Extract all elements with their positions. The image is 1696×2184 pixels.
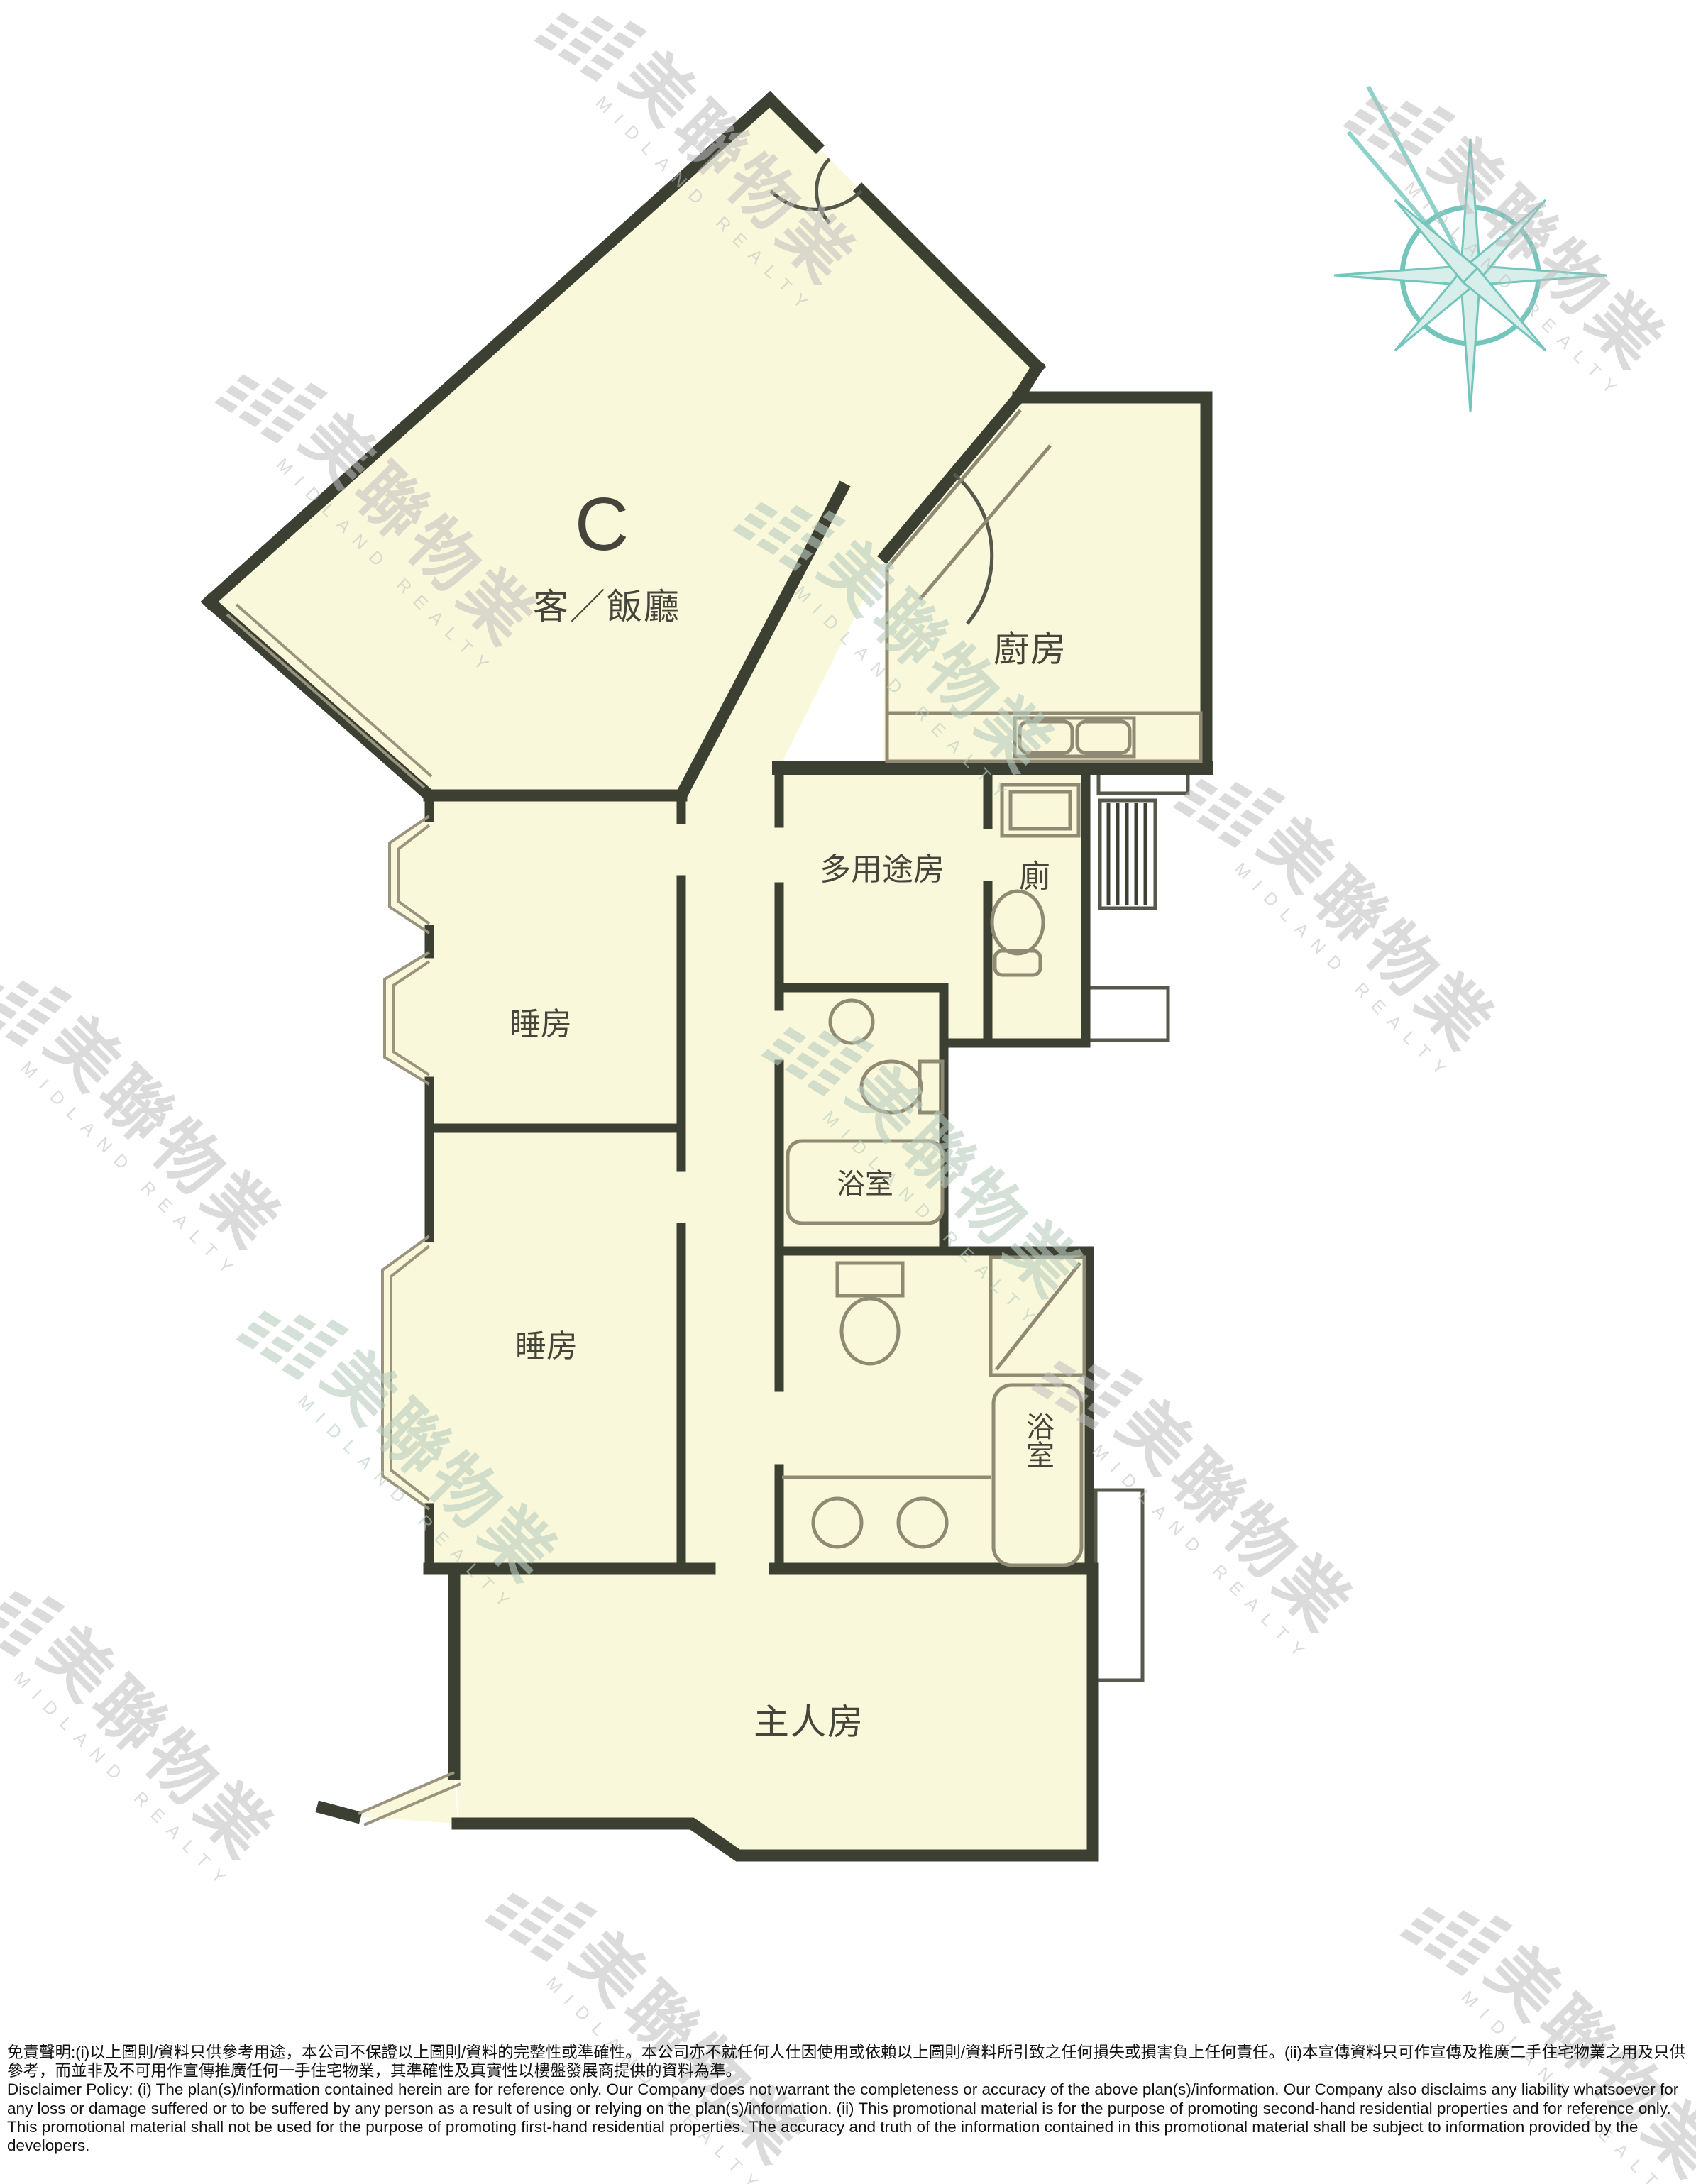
toilet-label: 廁 bbox=[1019, 859, 1050, 894]
room-fills bbox=[209, 99, 1206, 1855]
multipurpose-label: 多用途房 bbox=[820, 852, 945, 887]
disclaimer-zh: 免責聲明:(i)以上圖則/資料只供參考用途，本公司不保證以上圖則/資料的完整性或… bbox=[7, 2044, 1690, 2080]
unit-label: C bbox=[575, 482, 629, 566]
master-side-window bbox=[1096, 1490, 1142, 1680]
bath-side-window bbox=[1089, 988, 1168, 1040]
floor-plan-drawing: C 客／飯廳 廚房 多用途房 廁 睡房 睡房 浴室 浴室 主人房 bbox=[0, 0, 1696, 2184]
bedroom2-label: 睡房 bbox=[515, 1329, 578, 1364]
bedroom1-label: 睡房 bbox=[510, 1007, 572, 1042]
disclaimer-en: Disclaimer Policy: (i) The plan(s)/infor… bbox=[7, 2080, 1690, 2155]
disclaimer: 免責聲明:(i)以上圖則/資料只供參考用途，本公司不保證以上圖則/資料的完整性或… bbox=[7, 2044, 1690, 2155]
floor-plan-page: C 客／飯廳 廚房 多用途房 廁 睡房 睡房 浴室 浴室 主人房 bbox=[0, 0, 1696, 2184]
master-bathroom-label: 浴室 bbox=[1022, 1412, 1054, 1469]
master-bedroom-label: 主人房 bbox=[754, 1702, 864, 1742]
kitchen-label: 廚房 bbox=[993, 629, 1067, 669]
bathroom1-label: 浴室 bbox=[837, 1169, 893, 1200]
windows bbox=[1089, 766, 1188, 1680]
living-dining-label: 客／飯廳 bbox=[533, 587, 681, 627]
compass-icon bbox=[1334, 87, 1607, 412]
